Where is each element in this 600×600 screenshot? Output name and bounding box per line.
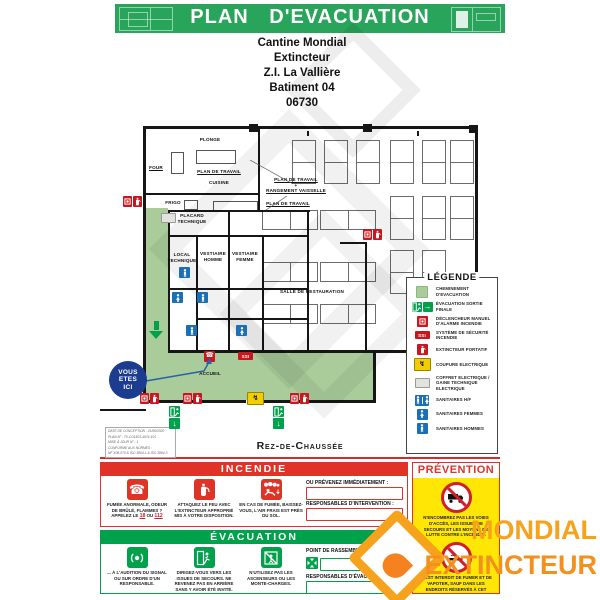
legend-item-label: SANITAIRES HOMMES (436, 426, 484, 432)
wall (417, 131, 419, 136)
wall (143, 126, 478, 129)
room-label-plan-de-travail: Plan de Travail (268, 177, 324, 183)
you-are-here-text: ETES (119, 376, 137, 384)
address-line: Cantine Mondial (150, 36, 454, 51)
legend-box: LÉGENDE CHEMINEMENT D'EVACUATION→ÉVACUAT… (406, 277, 498, 454)
wall (168, 235, 309, 237)
instruction-caption: DIRIGEZ-VOUS VERS LES ISSUES DE SECOURS.… (172, 570, 236, 593)
dining-table (320, 304, 376, 324)
toilets-men-icon (186, 325, 197, 336)
instruction-caption: FUMÉE ANORMALE, ODEUR DE BRÛLÉ, FLAMMES … (105, 502, 169, 520)
legend-item: CHEMINEMENT D'EVACUATION (411, 286, 495, 298)
wall (307, 131, 309, 136)
toilets-women-icon (172, 292, 183, 303)
legend-items: CHEMINEMENT D'EVACUATION→ÉVACUATION SORT… (411, 286, 495, 434)
you-are-here-badge: VOUSETESICI (109, 361, 147, 399)
dining-table (422, 196, 446, 240)
dining-table (262, 304, 318, 324)
dining-table (422, 140, 446, 184)
wall (307, 210, 309, 352)
fire-instruction: ATTAQUEZ LE FEU AVEC L'EXTINCTEUR APPROP… (172, 479, 236, 521)
room-label-plonge: Plonge (180, 137, 240, 143)
title-band: PLAN D'EVACUATION (115, 4, 505, 33)
wall (258, 128, 260, 212)
document-info-line: NF X08-070 & ISO 3864-1 & ISO 3864-3 (108, 451, 173, 457)
dining-table (390, 196, 414, 240)
dining-table (450, 140, 474, 184)
extinguisher-icon (411, 344, 433, 355)
legend-item-label: DÉCLENCHEUR MANUEL D'ALARME INCENDIE (436, 316, 495, 327)
evacuation-instruction: ... À L'AUDITION DU SIGNAL OU SUR ORDRE … (105, 547, 169, 594)
legend-item-label: CHEMINEMENT D'EVACUATION (436, 286, 495, 297)
room-label-plan-de-travail: Plan de Travail (190, 169, 248, 175)
evacuation-plan-page: PLAN D'EVACUATION Cantine MondialExtinct… (0, 0, 600, 600)
exit-run-icon (194, 547, 215, 568)
wall (100, 409, 146, 411)
kitchen-counter (171, 152, 184, 174)
wall (228, 212, 230, 352)
legend-item: EXTINCTEUR PORTATIF (411, 344, 495, 355)
wall (249, 124, 258, 132)
fire-instruction: ☎FUMÉE ANORMALE, ODEUR DE BRÛLÉ, FLAMMES… (105, 479, 169, 521)
room-label-rangement-vaisselle: Rangement Vaisselle (262, 188, 330, 194)
brand-logo: MONDIAL EXTINCTEUR (350, 503, 600, 600)
legend-title: LÉGENDE (424, 272, 479, 283)
fire-safety-system-label: SSI (238, 352, 253, 360)
evacuation-path-swatch (411, 286, 433, 298)
dining-table (320, 262, 376, 282)
kitchen-counter (184, 200, 198, 210)
toilets-women-icon (236, 325, 247, 336)
page-title: PLAN D'EVACUATION (115, 6, 505, 29)
evacuation-instruction: DIRIGEZ-VOUS VERS LES ISSUES DE SECOURS.… (172, 547, 236, 594)
instruction-caption: ... À L'AUDITION DU SIGNAL OU SUR ORDRE … (105, 570, 169, 587)
contact-value-box (306, 487, 403, 500)
legend-item-label: COUPURE ELECTRIQUE (436, 362, 488, 368)
watermark-shape (149, 109, 429, 389)
document-info-box: DATE DE CONCEPTION : 21/08/2020PLAN N° :… (105, 427, 176, 458)
fire-instruction: EN CAS DE FUMÉE, BAISSEZ-VOUS, L'AIR FRA… (239, 479, 303, 521)
prevention-panel-title: PRÉVENTION (413, 463, 499, 478)
legend-item-label: SANITAIRES H/F (436, 397, 471, 403)
manual-call-point-and-extinguisher-icons (290, 393, 309, 404)
dining-table (356, 140, 380, 184)
alarm-phone-icon: ☎ (204, 351, 215, 362)
toilets-unisex-icon (411, 395, 433, 406)
final-exit-icon: ↓ (169, 406, 180, 429)
address-line: Z.I. La Vallière (150, 66, 454, 81)
manual-call-point-and-extinguisher-icons (140, 393, 159, 404)
instruction-caption: EN CAS DE FUMÉE, BAISSEZ-VOUS, L'AIR FRA… (239, 502, 303, 519)
fire-safety-system-label: SSI (411, 331, 433, 339)
dining-table (390, 140, 414, 184)
legend-item: COFFRET ELECTRIQUE / GAINE TECHNIQUE ELE… (411, 375, 495, 392)
instruction-caption: N'UTILISEZ PAS LES ASCENSEURS OU LES MON… (239, 570, 303, 587)
dining-table (262, 210, 318, 230)
legend-item: ↯COUPURE ELECTRIQUE (411, 358, 495, 371)
room-label-local-technique: Local Technique (167, 252, 197, 263)
floor-label: Rez-de-Chaussée (220, 440, 380, 452)
legend-item-label: ÉVACUATION SORTIE FINALE (436, 301, 495, 312)
wall (196, 318, 308, 320)
brand-name-line2: EXTINCTEUR (424, 550, 597, 581)
final-exit-icon: → (411, 302, 433, 312)
alarm-signal-icon (127, 547, 148, 568)
legend-item-label: COFFRET ELECTRIQUE / GAINE TECHNIQUE ELE… (436, 375, 495, 392)
site-address: Cantine MondialExtincteurZ.I. La Vallièr… (150, 36, 454, 111)
wall (143, 193, 260, 195)
room-label-four: Four (144, 165, 168, 171)
room-label-salle-de-restauration: Salle de Restauration (280, 289, 344, 295)
wall (168, 210, 170, 352)
legend-item-label: SYSTÈME DE SÉCURITÉ INCENDIE (436, 330, 495, 341)
electrical-cutoff-icon: ↯ (247, 392, 264, 405)
toilets-men-icon (179, 267, 190, 278)
dining-table (262, 262, 318, 282)
contact-label: OU PRÉVENEZ IMMÉDIATEMENT : (306, 480, 403, 486)
kitchen-counter (196, 150, 236, 164)
toilets-men-icon (197, 292, 208, 303)
room-label-frigo: Frigo (163, 200, 183, 206)
assembly-point-icon (306, 555, 318, 573)
phone-flame-icon: ☎ (127, 479, 148, 500)
wall (262, 237, 264, 352)
wall (469, 125, 478, 133)
electrical-cabinet-icon (161, 213, 176, 223)
legend-item-label: SANITAIRES FEMMES (436, 411, 483, 417)
legend-item: SSISYSTÈME DE SÉCURITÉ INCENDIE (411, 330, 495, 341)
address-line: 06730 (150, 96, 454, 111)
brand-name-line1: MONDIAL (471, 515, 597, 546)
no-elevator-icon (261, 547, 282, 568)
legend-item: SANITAIRES H/F (411, 395, 495, 406)
wall (363, 124, 372, 132)
fire-panel-title: INCENDIE (101, 463, 407, 476)
wall (373, 350, 376, 403)
electrical-cutoff-icon: ↯ (411, 358, 433, 371)
electrical-cabinet-icon (411, 378, 433, 388)
you-are-here-text: ICI (123, 384, 132, 392)
room-label-placard-technique: Placard Technique (172, 213, 212, 224)
legend-item: DÉCLENCHEUR MANUEL D'ALARME INCENDIE (411, 316, 495, 327)
legend-item: SANITAIRES HOMMES (411, 423, 495, 434)
room-label-plan-de-travail: Plan de Travail (260, 201, 316, 207)
room-label-accueil: Accueil (192, 371, 228, 377)
address-line: Batiment 04 (150, 81, 454, 96)
toilets-women-icon (411, 409, 433, 420)
crawl-low-icon (261, 479, 282, 500)
room-label-cuisine: Cuisine (194, 180, 244, 186)
room-label-vestiaire-femme: Vestiaire Femme (229, 251, 261, 262)
final-exit-icon: ↓ (273, 406, 284, 429)
address-line: Extincteur (150, 51, 454, 66)
manual-call-point-icon (411, 316, 433, 327)
wall (340, 242, 367, 244)
you-are-here-text: VOUS (118, 369, 138, 377)
blueprint-decor-right (451, 7, 501, 32)
legend-item-label: EXTINCTEUR PORTATIF (436, 347, 487, 353)
evacuation-instruction: N'UTILISEZ PAS LES ASCENSEURS OU LES MON… (239, 547, 303, 594)
document-info-line: DATE DE CONCEPTION : 21/08/2020 (108, 429, 173, 435)
manual-call-point-and-extinguisher-icons (123, 196, 142, 207)
manual-call-point-and-extinguisher-icons (363, 229, 382, 240)
instruction-caption: ATTAQUEZ LE FEU AVEC L'EXTINCTEUR APPROP… (172, 502, 236, 519)
extinguisher-icon (194, 479, 215, 500)
dining-table (324, 140, 348, 184)
legend-item: SANITAIRES FEMMES (411, 409, 495, 420)
room-label-vestiaire-homme: Vestiaire Homme (197, 251, 229, 262)
toilets-men-icon (411, 423, 433, 434)
manual-call-point-and-extinguisher-icons (183, 393, 202, 404)
evacuation-arrow-icon (149, 321, 163, 339)
wall (168, 210, 310, 212)
legend-item: →ÉVACUATION SORTIE FINALE (411, 301, 495, 312)
wall (365, 242, 367, 350)
dining-table (320, 210, 376, 230)
dining-table (450, 196, 474, 240)
